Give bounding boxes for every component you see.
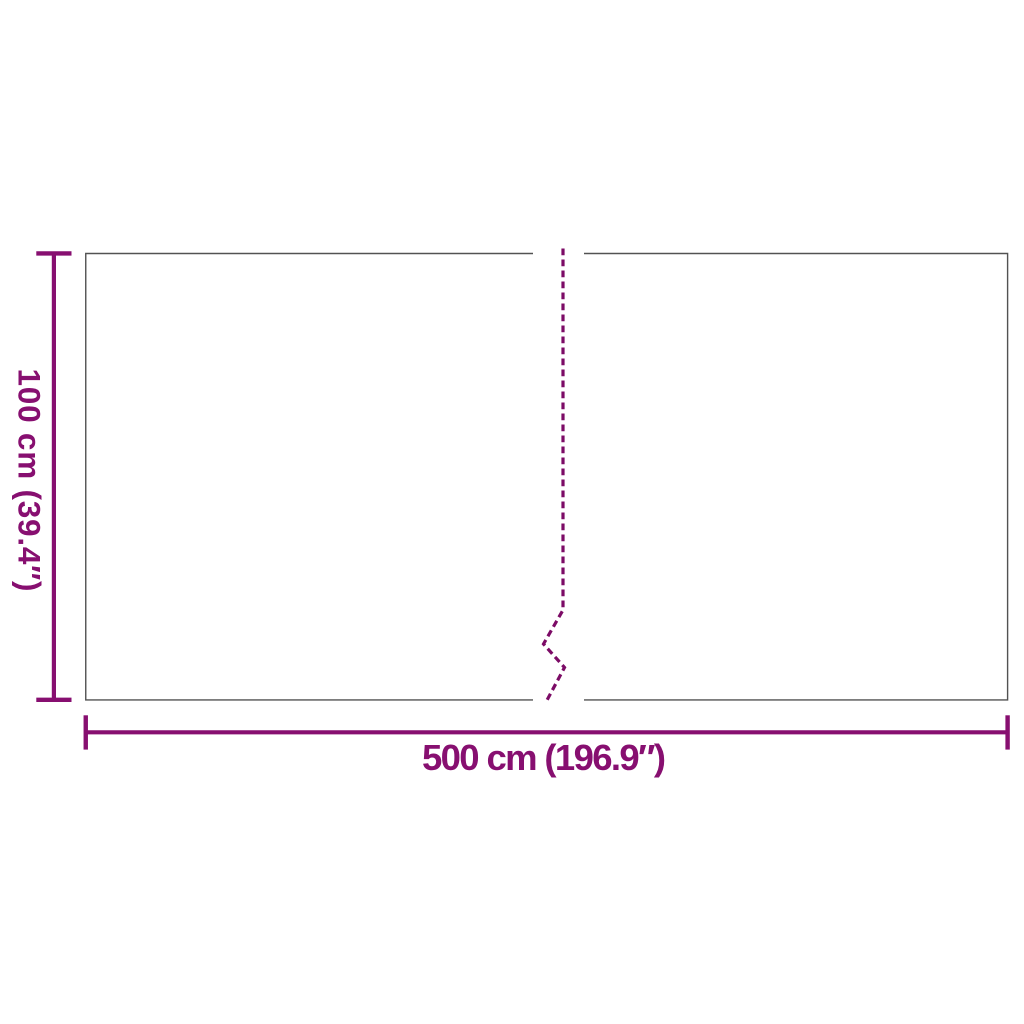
svg-text:500 cm (196.9″): 500 cm (196.9″) bbox=[422, 737, 666, 778]
svg-text:100 cm (39.4″): 100 cm (39.4″) bbox=[12, 369, 48, 592]
